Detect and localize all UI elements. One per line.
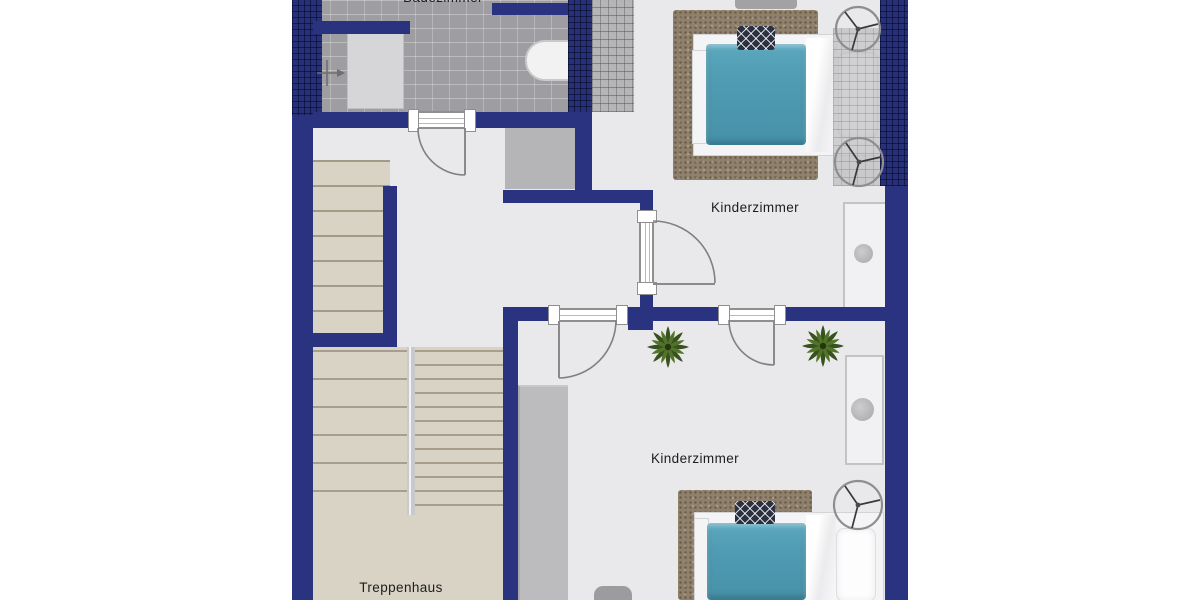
door-hall-to-bottom-room bbox=[559, 308, 616, 322]
room-label-bathroom: Badezimmer bbox=[393, 0, 493, 5]
door-jamb bbox=[718, 305, 730, 325]
stair-flight-upper bbox=[313, 160, 390, 335]
wall-bottomroom-left bbox=[503, 307, 518, 600]
door-jamb bbox=[637, 282, 657, 295]
wardrobe-knob bbox=[851, 398, 874, 421]
bed-pillow-bottom bbox=[836, 528, 876, 600]
wall-hall-top bbox=[503, 190, 653, 203]
door-jamb bbox=[774, 305, 786, 325]
door-jamb bbox=[637, 210, 657, 223]
room-label-staircase: Treppenhaus bbox=[340, 580, 462, 595]
wall-shower-stub bbox=[313, 21, 410, 34]
room-label-children-bottom: Kinderzimmer bbox=[630, 451, 760, 466]
shelf bbox=[735, 0, 797, 9]
roof-shingle-area bbox=[592, 0, 634, 112]
shower-tray bbox=[347, 33, 404, 109]
roof-hatch-left bbox=[292, 0, 322, 120]
door-between-rooms bbox=[729, 308, 774, 322]
chair bbox=[594, 586, 632, 600]
bed-blanket-top bbox=[706, 44, 806, 145]
roof-hatch-right bbox=[880, 0, 908, 186]
bed-footboard-top bbox=[692, 50, 707, 144]
wall-stair-right bbox=[383, 186, 397, 347]
bed-blanket-bottom bbox=[707, 523, 806, 600]
stair-flight-left bbox=[313, 350, 407, 516]
bed-cushion-bottom bbox=[735, 501, 775, 524]
room-label-children-top: Kinderzimmer bbox=[690, 200, 820, 215]
wall-room-divider-mid bbox=[627, 307, 719, 321]
wall-bathroom-bottom-left bbox=[313, 112, 413, 128]
door-jamb bbox=[464, 109, 476, 132]
door-jamb bbox=[408, 109, 419, 132]
wall-stair-bottom bbox=[313, 333, 397, 347]
wall-room-divider-right bbox=[785, 307, 885, 321]
wall-top-stub bbox=[492, 3, 578, 15]
wall-bathroom-bottom-right bbox=[471, 112, 592, 128]
stair-handrail bbox=[407, 347, 415, 515]
door-jamb bbox=[548, 305, 560, 325]
bed-cushion-top bbox=[737, 26, 775, 50]
roof-hatch-bathroom-right bbox=[568, 0, 592, 113]
wardrobe-gray bbox=[518, 385, 568, 600]
knee-wall-area bbox=[505, 126, 576, 189]
wall-left-outer bbox=[292, 115, 313, 600]
bed-sheet-bottom bbox=[806, 515, 836, 600]
stair-flight-right bbox=[414, 350, 504, 514]
door-jamb bbox=[616, 305, 628, 325]
roof-shingle-over-bed bbox=[833, 28, 880, 186]
door-hall-to-top-room bbox=[639, 221, 654, 283]
floor-plan: Badezimmer Kinderzimmer Kinderzimmer Tre… bbox=[0, 0, 1200, 600]
wardrobe-knob bbox=[854, 244, 873, 263]
door-bathroom bbox=[418, 111, 465, 129]
